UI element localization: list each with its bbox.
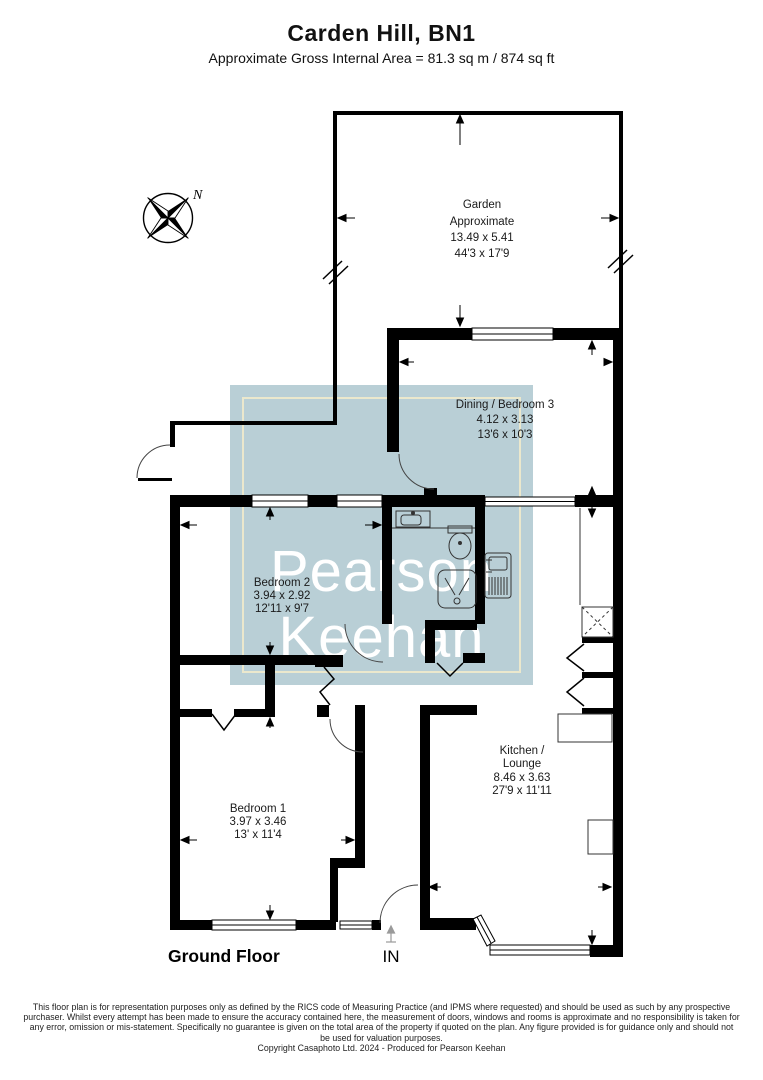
svg-text:3.97 x 3.46: 3.97 x 3.46 — [230, 816, 287, 828]
lounge-unit-icon — [558, 714, 612, 742]
copyright-line: Copyright Casaphoto Ltd. 2024 - Produced… — [0, 1043, 763, 1053]
floorplan-drawing: N Garden Approximate 13.49 x 5.41 44'3 x… — [0, 0, 763, 1080]
cupboard-door-right-1 — [567, 644, 584, 671]
compass-north-label: N — [192, 188, 203, 203]
interior-lines — [392, 508, 580, 605]
disclaimer-line: any error, omission or mis-statement. Sp… — [0, 1022, 763, 1032]
entrance-arrow-icon — [386, 926, 396, 942]
floor-label: Ground Floor — [168, 946, 280, 966]
disclaimer-line: be used for valuation purposes. — [0, 1033, 763, 1043]
svg-text:3.94 x 2.92: 3.94 x 2.92 — [254, 590, 311, 602]
svg-text:13'6 x 10'3: 13'6 x 10'3 — [478, 429, 533, 441]
garden-boundary-walls — [138, 111, 623, 481]
floorplan-page: Carden Hill, BN1 Approximate Gross Inter… — [0, 0, 763, 1080]
front-door-arc — [380, 885, 418, 923]
kitchen-sink-icon — [485, 553, 511, 598]
svg-text:44'3 x 17'9: 44'3 x 17'9 — [455, 248, 510, 260]
folding-door — [320, 667, 334, 705]
side-gate-door-arc — [137, 445, 170, 478]
room-label-bedroom1: Bedroom 1 3.97 x 3.46 13' x 11'4 — [230, 803, 287, 841]
svg-text:12'11 x 9'7: 12'11 x 9'7 — [255, 603, 309, 615]
compass-icon: N — [144, 188, 204, 243]
footer-disclaimer: This floor plan is for representation pu… — [0, 1002, 763, 1053]
kitchen-fixtures — [485, 553, 613, 854]
cupboard-door-center — [437, 663, 463, 676]
svg-text:8.46 x 3.63: 8.46 x 3.63 — [494, 772, 551, 784]
svg-text:13.49 x 5.41: 13.49 x 5.41 — [450, 232, 513, 244]
svg-text:Garden: Garden — [463, 199, 501, 211]
disclaimer-line: purchaser. Whilst every attempt has been… — [0, 1012, 763, 1022]
svg-text:Bedroom 2: Bedroom 2 — [254, 577, 310, 589]
closet-door — [212, 714, 236, 730]
room-label-kitchen-lounge: Kitchen / Lounge 8.46 x 3.63 27'9 x 11'1… — [492, 745, 552, 797]
room-label-dining-bedroom3: Dining / Bedroom 3 4.12 x 3.13 13'6 x 10… — [456, 399, 554, 441]
toilet-icon — [448, 526, 472, 559]
svg-text:Approximate: Approximate — [450, 216, 515, 228]
svg-text:Bedroom 1: Bedroom 1 — [230, 803, 286, 815]
bathroom-fixtures — [396, 511, 476, 608]
entrance-label: IN — [383, 947, 400, 966]
dining-door-arc — [399, 454, 434, 489]
shower-icon — [438, 570, 476, 608]
svg-text:4.12 x 3.13: 4.12 x 3.13 — [477, 414, 534, 426]
room-label-garden: Garden Approximate 13.49 x 5.41 44'3 x 1… — [450, 199, 515, 260]
svg-text:27'9 x 11'11: 27'9 x 11'11 — [492, 785, 552, 797]
svg-text:Dining / Bedroom 3: Dining / Bedroom 3 — [456, 399, 554, 411]
svg-text:Lounge: Lounge — [503, 758, 541, 770]
airing-cupboard-icon — [582, 607, 613, 637]
room-label-bedroom2: Bedroom 2 3.94 x 2.92 12'11 x 9'7 — [254, 577, 311, 615]
svg-text:13' x 11'4: 13' x 11'4 — [234, 829, 282, 841]
svg-text:Kitchen /: Kitchen / — [500, 745, 546, 757]
disclaimer-line: This floor plan is for representation pu… — [0, 1002, 763, 1012]
bathroom-door-arc — [345, 624, 383, 662]
cupboard-door-right-2 — [567, 678, 584, 706]
basin-icon — [396, 511, 430, 527]
lounge-unit-icon-2 — [588, 820, 613, 854]
